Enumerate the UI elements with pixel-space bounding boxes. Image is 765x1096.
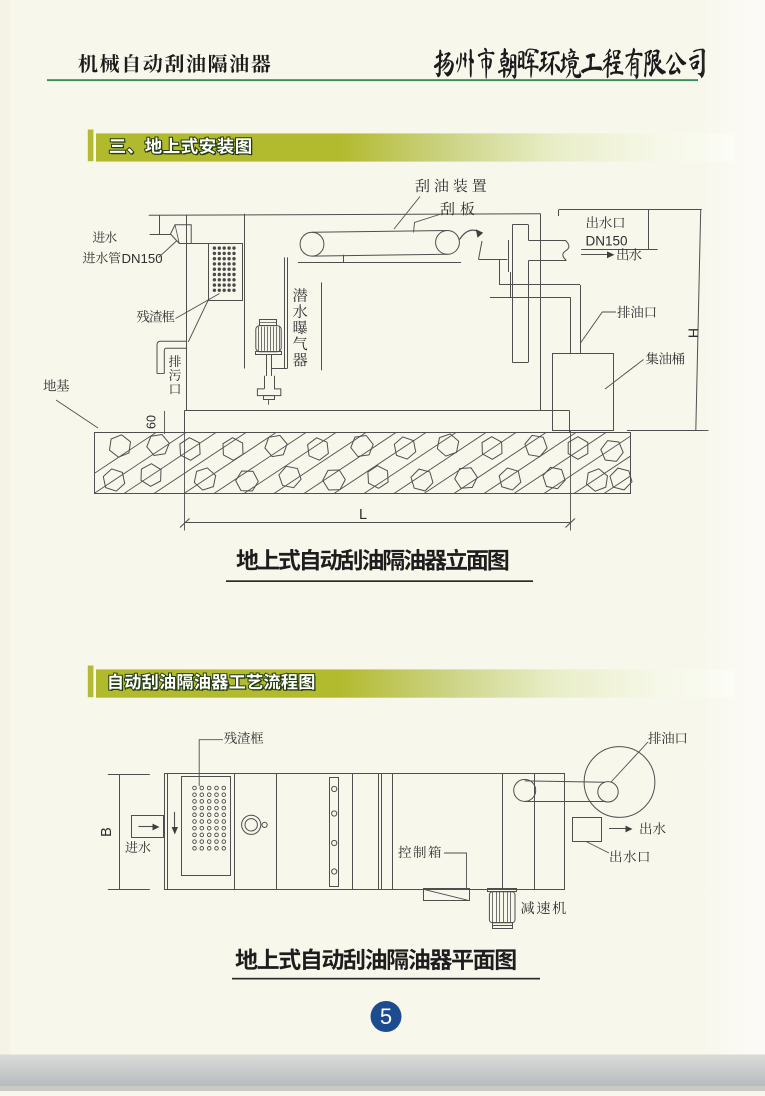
svg-text:DN150: DN150 <box>586 234 628 249</box>
svg-text:L: L <box>359 507 367 523</box>
svg-text:DN150: DN150 <box>122 251 163 266</box>
svg-text:H: H <box>686 328 702 338</box>
svg-text:60: 60 <box>145 415 159 429</box>
svg-text:5: 5 <box>380 1004 392 1029</box>
svg-text:B: B <box>99 827 115 837</box>
